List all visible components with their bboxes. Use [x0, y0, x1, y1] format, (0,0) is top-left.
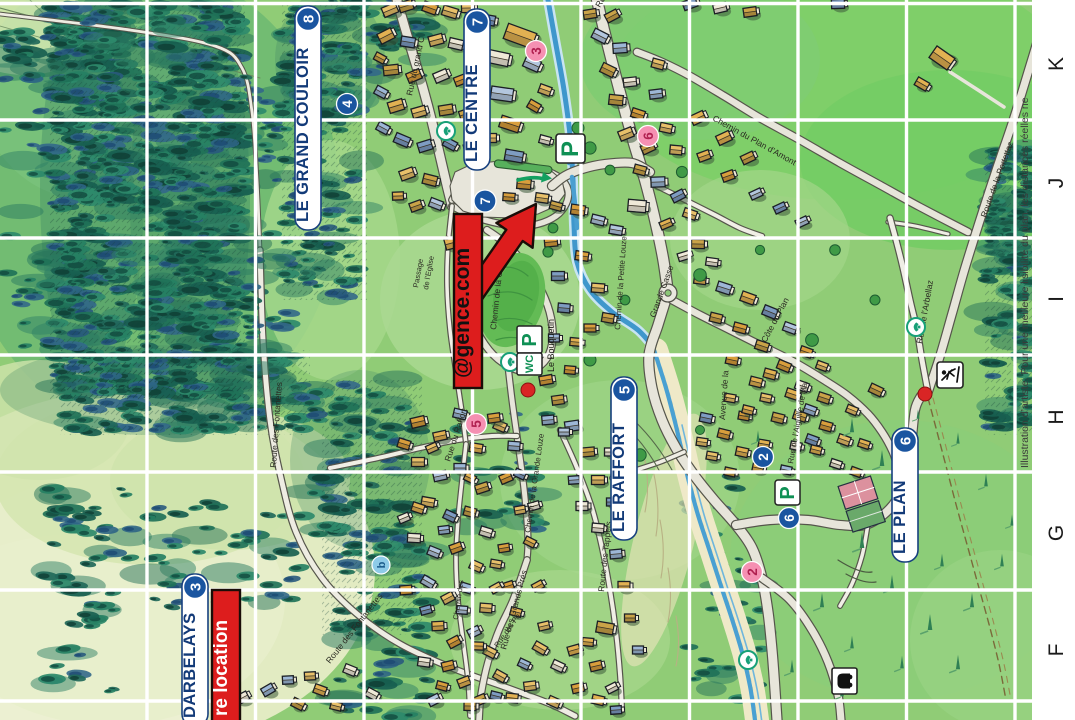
svg-text:2: 2 [745, 568, 760, 576]
svg-text:5: 5 [617, 386, 634, 394]
svg-text:LE GRAND COULOIR: LE GRAND COULOIR [294, 47, 312, 222]
svg-text:6: 6 [641, 132, 656, 140]
svg-text:WC: WC [524, 355, 536, 373]
svg-text:6: 6 [782, 514, 797, 522]
svg-text:LE PLAN: LE PLAN [891, 480, 909, 554]
svg-text:DARBELAYS: DARBELAYS [181, 612, 199, 718]
svg-text:K: K [1045, 57, 1068, 71]
svg-text:P: P [557, 141, 584, 157]
svg-text:Illustration d’artiste. Pour u: Illustration d’artiste. Pour une meilleu… [1019, 97, 1031, 468]
svg-text:re location: re location [211, 620, 232, 716]
svg-text:2: 2 [756, 453, 771, 461]
svg-text:F: F [1045, 644, 1068, 657]
svg-text:3: 3 [188, 583, 205, 591]
svg-text:LE CENTRE: LE CENTRE [463, 64, 481, 162]
svg-text:P: P [777, 486, 799, 499]
svg-text:5: 5 [469, 420, 484, 428]
svg-text:b: b [376, 561, 388, 568]
svg-text:4: 4 [340, 100, 355, 108]
svg-text:7: 7 [470, 18, 487, 26]
svg-text:H: H [1045, 409, 1068, 424]
svg-text:LE RAFFORT: LE RAFFORT [610, 423, 628, 533]
svg-text:@gence.com: @gence.com [451, 248, 474, 378]
svg-text:I: I [1045, 296, 1068, 302]
svg-text:P: P [519, 333, 541, 346]
svg-text:J: J [1045, 178, 1068, 189]
svg-text:7: 7 [478, 197, 493, 205]
svg-text:Le Bouquetin: Le Bouquetin [546, 319, 556, 372]
svg-text:8: 8 [301, 15, 318, 23]
svg-text:6: 6 [898, 437, 915, 445]
svg-text:G: G [1045, 525, 1068, 541]
svg-text:3: 3 [529, 47, 544, 55]
